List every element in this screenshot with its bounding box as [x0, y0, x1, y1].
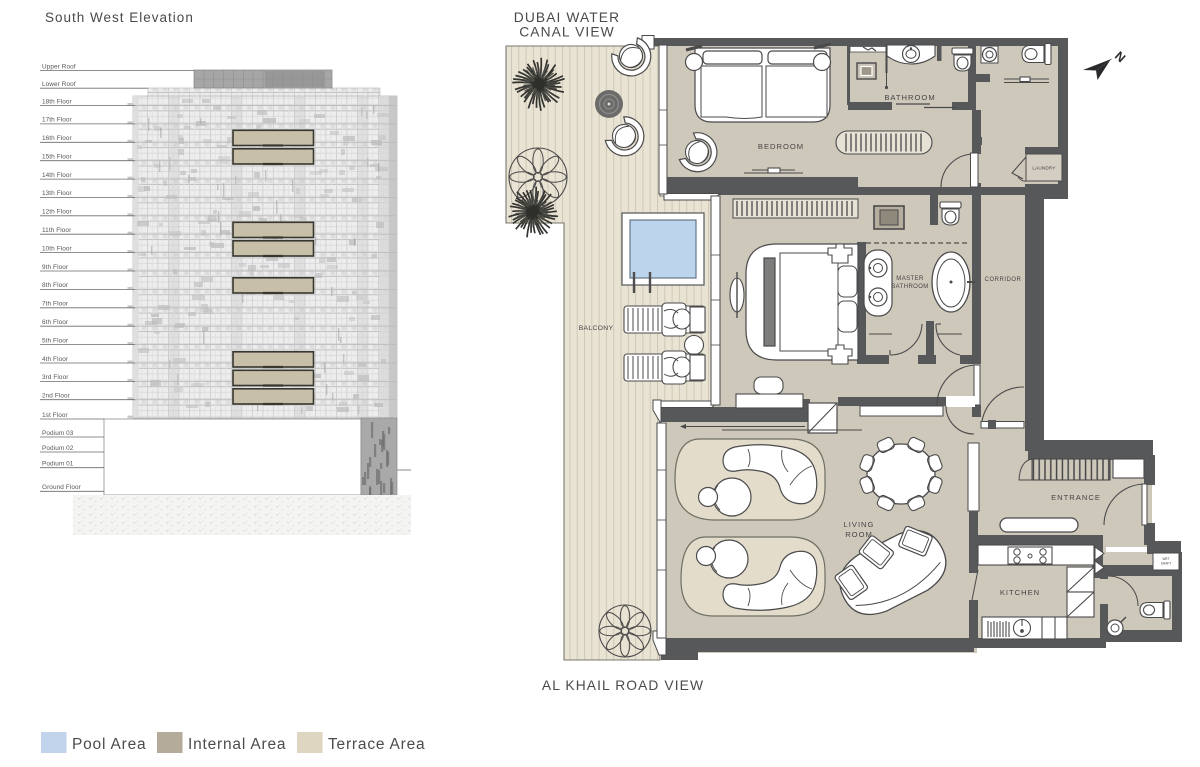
svg-text:Podium 03: Podium 03 [42, 430, 74, 437]
svg-text:2nd Floor: 2nd Floor [42, 393, 71, 400]
svg-text:6th Floor: 6th Floor [42, 319, 69, 326]
svg-text:N: N [1112, 49, 1128, 65]
svg-text:18th Floor: 18th Floor [42, 98, 73, 105]
svg-text:LIVING: LIVING [844, 520, 875, 529]
svg-text:BALCONY: BALCONY [579, 325, 614, 332]
svg-text:15th Floor: 15th Floor [42, 154, 73, 161]
svg-text:South West Elevation: South West Elevation [45, 10, 194, 25]
svg-text:8th Floor: 8th Floor [42, 282, 69, 289]
svg-text:BATHROOM: BATHROOM [891, 284, 928, 290]
svg-text:12th Floor: 12th Floor [42, 209, 73, 216]
svg-text:Lower Roof: Lower Roof [42, 81, 76, 88]
svg-text:BATHROOM: BATHROOM [884, 93, 935, 102]
svg-text:Podium 02: Podium 02 [42, 445, 74, 452]
svg-text:17th Floor: 17th Floor [42, 117, 73, 124]
svg-text:3rd Floor: 3rd Floor [42, 374, 69, 381]
svg-text:16th Floor: 16th Floor [42, 135, 73, 142]
svg-text:Podium 01: Podium 01 [42, 461, 74, 468]
svg-text:9th Floor: 9th Floor [42, 264, 69, 271]
svg-text:Pool Area: Pool Area [72, 736, 146, 753]
svg-text:AL KHAIL ROAD VIEW: AL KHAIL ROAD VIEW [542, 678, 704, 693]
svg-text:CORRIDOR: CORRIDOR [985, 277, 1022, 283]
svg-text:Terrace Area: Terrace Area [328, 736, 425, 753]
svg-text:MASTER: MASTER [896, 276, 924, 282]
svg-text:10th Floor: 10th Floor [42, 245, 73, 252]
svg-text:WET: WET [1162, 557, 1169, 561]
svg-text:KITCHEN: KITCHEN [1000, 588, 1040, 597]
svg-text:LAUNDRY: LAUNDRY [1032, 166, 1055, 171]
svg-text:Ground Floor: Ground Floor [42, 484, 82, 491]
svg-text:14th Floor: 14th Floor [42, 172, 73, 179]
svg-text:1st Floor: 1st Floor [42, 412, 69, 419]
svg-text:11th Floor: 11th Floor [42, 227, 72, 234]
svg-text:5th Floor: 5th Floor [42, 337, 69, 344]
svg-text:CANAL VIEW: CANAL VIEW [519, 25, 615, 40]
svg-text:13th Floor: 13th Floor [42, 190, 73, 197]
svg-text:4th Floor: 4th Floor [42, 356, 69, 363]
svg-text:DUBAI WATER: DUBAI WATER [514, 10, 620, 25]
svg-text:ROOM: ROOM [845, 530, 873, 539]
svg-text:7th Floor: 7th Floor [42, 301, 69, 308]
svg-text:BEDROOM: BEDROOM [758, 142, 804, 151]
svg-text:Upper Roof: Upper Roof [42, 63, 76, 70]
svg-text:Internal Area: Internal Area [188, 736, 286, 753]
svg-text:ENTRANCE: ENTRANCE [1051, 493, 1101, 502]
svg-text:SHAFT: SHAFT [1161, 562, 1172, 566]
